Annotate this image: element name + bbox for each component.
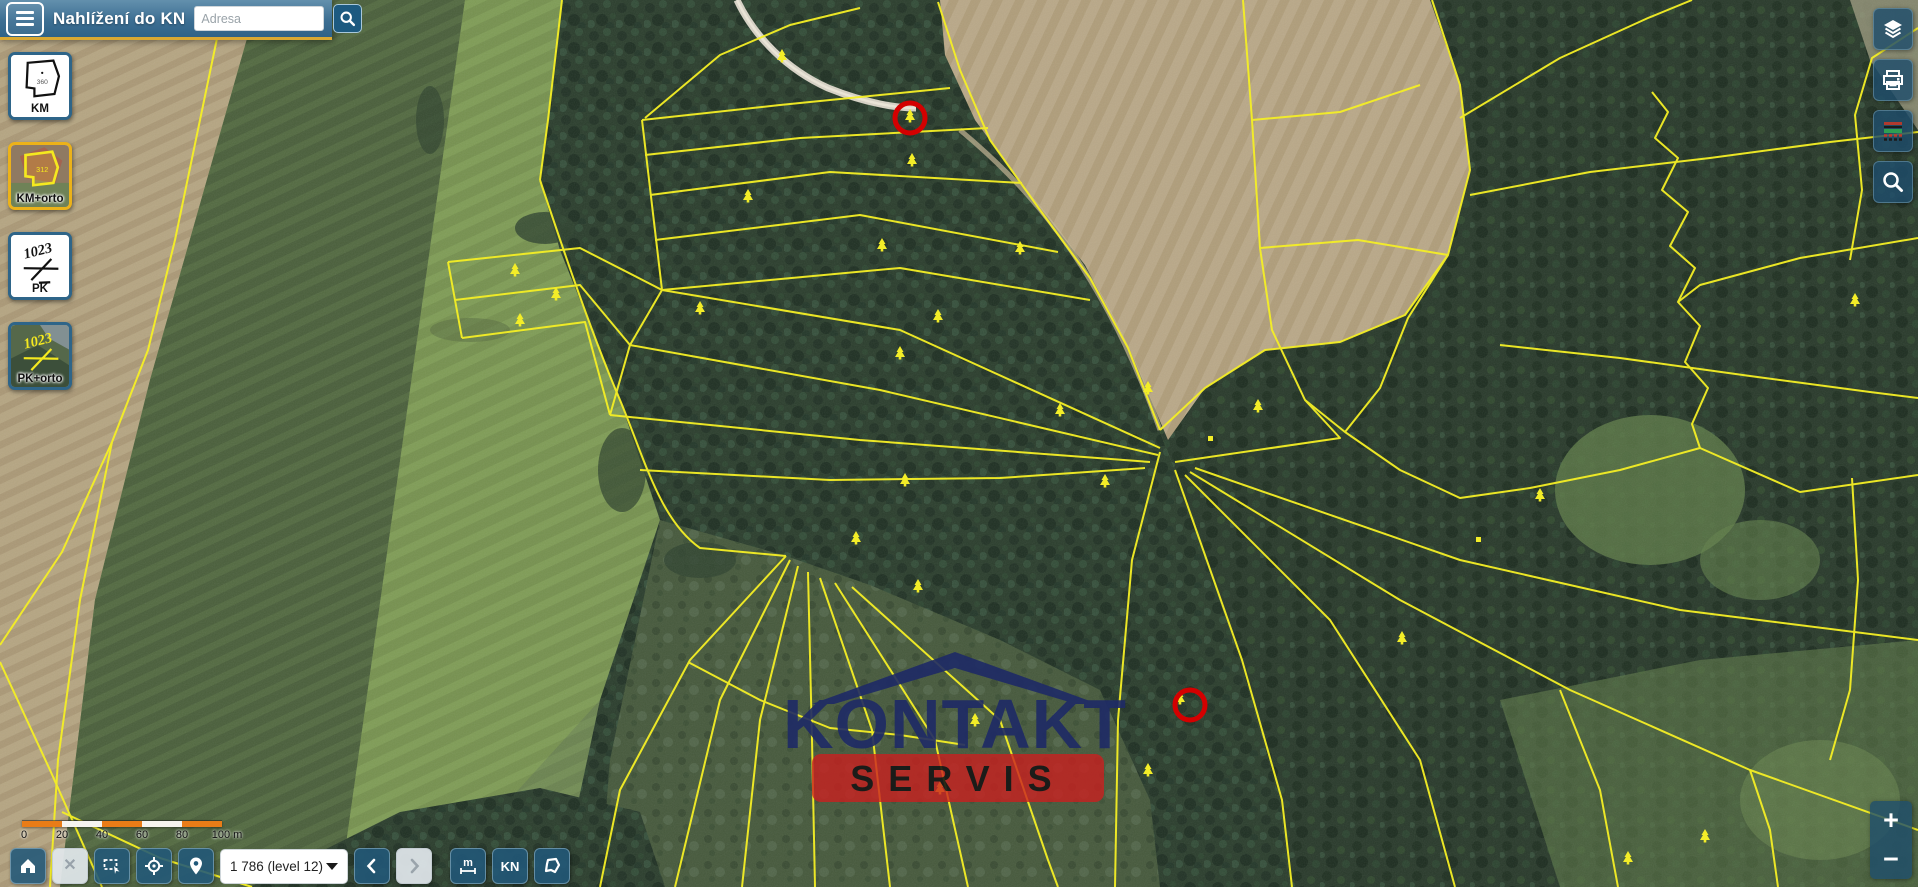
search-map-icon bbox=[1881, 170, 1905, 194]
topbar: Nahlížení do KN bbox=[0, 0, 332, 40]
svg-text:360: 360 bbox=[37, 79, 48, 86]
km-thumbnail: 360 bbox=[11, 55, 69, 117]
address-search-button[interactable] bbox=[333, 4, 362, 33]
layers-icon bbox=[1881, 17, 1905, 41]
watermark-line1: KONTAKT bbox=[783, 685, 1127, 763]
pk-thumbnail: 1023 bbox=[11, 235, 69, 297]
km-orto-thumbnail: 312 bbox=[11, 145, 69, 207]
history-forward-button[interactable] bbox=[396, 848, 432, 884]
layer-button-km-orto[interactable]: 312 KM+orto bbox=[8, 142, 72, 210]
scalebar-tick: 100 m bbox=[212, 829, 243, 841]
layers-button[interactable] bbox=[1873, 8, 1913, 50]
chevron-left-icon bbox=[363, 857, 381, 875]
measure-button[interactable]: m bbox=[450, 848, 486, 884]
locate-position-button[interactable] bbox=[136, 848, 172, 884]
chevron-down-icon bbox=[326, 863, 338, 870]
basemap-layer-panel: 360 KM 312 KM+orto 1023 PK bbox=[8, 52, 72, 390]
kn-label: KN bbox=[501, 860, 520, 873]
polygon-icon bbox=[542, 856, 562, 876]
watermark-line2: SERVIS bbox=[850, 758, 1065, 799]
place-marker-button[interactable] bbox=[178, 848, 214, 884]
legend-button[interactable] bbox=[1873, 110, 1913, 152]
scalebar-tick: 20 bbox=[56, 829, 68, 841]
map-pin-icon bbox=[186, 856, 206, 876]
map-search-button[interactable] bbox=[1873, 161, 1913, 203]
zoom-control: + − bbox=[1870, 801, 1912, 879]
home-icon bbox=[18, 856, 38, 876]
address-search-input[interactable] bbox=[194, 6, 324, 31]
bottom-toolbar: ✕ 1 786 (level 12) bbox=[10, 848, 570, 884]
right-toolbar bbox=[1873, 8, 1913, 203]
zoom-in-button[interactable]: + bbox=[1870, 801, 1912, 840]
crosshair-locate-icon bbox=[144, 856, 164, 876]
zoom-out-button[interactable]: − bbox=[1870, 840, 1912, 879]
scalebar-tick: 0 bbox=[21, 829, 27, 841]
chevron-right-icon bbox=[405, 857, 423, 875]
layer-button-km[interactable]: 360 KM bbox=[8, 52, 72, 120]
kn-info-button[interactable]: KN bbox=[492, 848, 528, 884]
app-title: Nahlížení do KN bbox=[53, 9, 185, 29]
home-extent-button[interactable] bbox=[10, 848, 46, 884]
scalebar-ticks: 0 20 40 60 80 100 m bbox=[22, 829, 232, 843]
svg-text:312: 312 bbox=[36, 165, 48, 174]
layer-button-pk-orto[interactable]: 1023 PK+orto bbox=[8, 322, 72, 390]
selection-box-icon bbox=[102, 856, 122, 876]
legend-icon bbox=[1881, 119, 1905, 143]
scalebar-tick: 60 bbox=[136, 829, 148, 841]
scalebar: 0 20 40 60 80 100 m bbox=[22, 820, 232, 843]
select-by-rectangle-button[interactable] bbox=[94, 848, 130, 884]
search-icon bbox=[339, 10, 356, 27]
close-icon: ✕ bbox=[63, 858, 76, 874]
pk-orto-thumbnail: 1023 bbox=[11, 325, 69, 387]
scalebar-tick: 40 bbox=[96, 829, 108, 841]
menu-button[interactable] bbox=[6, 2, 44, 36]
scale-select-dropdown[interactable]: 1 786 (level 12) bbox=[220, 849, 348, 884]
measure-icon: m bbox=[457, 855, 479, 877]
svg-text:m: m bbox=[463, 857, 473, 869]
scalebar-bar bbox=[22, 820, 222, 827]
history-back-button[interactable] bbox=[354, 848, 390, 884]
print-icon bbox=[1881, 68, 1905, 92]
map-canvas[interactable]: KONTAKT SERVIS bbox=[0, 0, 1918, 887]
scale-select-value: 1 786 (level 12) bbox=[230, 859, 323, 874]
scalebar-tick: 80 bbox=[176, 829, 188, 841]
layer-button-pk[interactable]: 1023 PK bbox=[8, 232, 72, 300]
clear-selection-button[interactable]: ✕ bbox=[52, 848, 88, 884]
map-viewer-window: KONTAKT SERVIS Nahlížení do KN 360 bbox=[0, 0, 1918, 887]
select-by-polygon-button[interactable] bbox=[534, 848, 570, 884]
print-button[interactable] bbox=[1873, 59, 1913, 101]
hamburger-icon bbox=[16, 11, 34, 14]
